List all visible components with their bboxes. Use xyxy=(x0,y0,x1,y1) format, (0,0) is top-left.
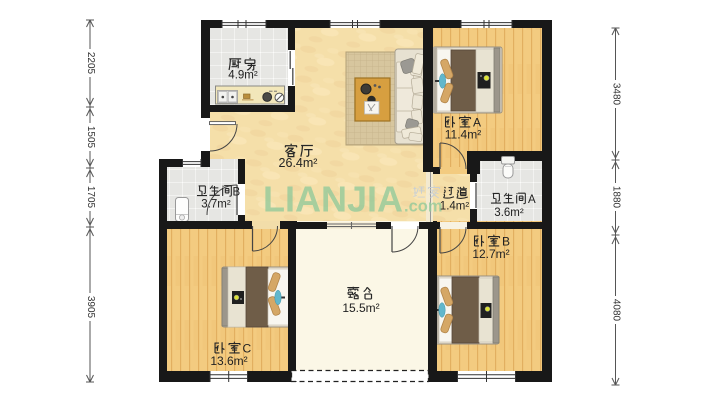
svg-text:4.9m²: 4.9m² xyxy=(228,70,258,82)
svg-text:.com: .com xyxy=(404,198,443,216)
svg-text:2205: 2205 xyxy=(85,52,96,75)
svg-text:1505: 1505 xyxy=(85,126,96,149)
svg-text:4080: 4080 xyxy=(611,299,622,322)
svg-text:LIANJIA: LIANJIA xyxy=(263,179,403,220)
svg-text:3.6m²: 3.6m² xyxy=(494,207,524,219)
svg-text:26.4m²: 26.4m² xyxy=(279,156,318,170)
svg-text:3905: 3905 xyxy=(85,296,96,319)
svg-text:13.6m²: 13.6m² xyxy=(210,354,247,368)
svg-text:1880: 1880 xyxy=(611,186,622,209)
svg-text:1.4m²: 1.4m² xyxy=(440,201,470,213)
svg-text:12.7m²: 12.7m² xyxy=(472,247,509,261)
svg-text:15.5m²: 15.5m² xyxy=(342,301,379,315)
svg-text:11.4m²: 11.4m² xyxy=(445,128,481,142)
svg-text:1705: 1705 xyxy=(85,186,96,209)
svg-text:B: B xyxy=(233,187,241,199)
svg-text:3480: 3480 xyxy=(611,83,622,106)
svg-text:3.7m²: 3.7m² xyxy=(201,199,231,211)
svg-text:A: A xyxy=(528,194,536,206)
